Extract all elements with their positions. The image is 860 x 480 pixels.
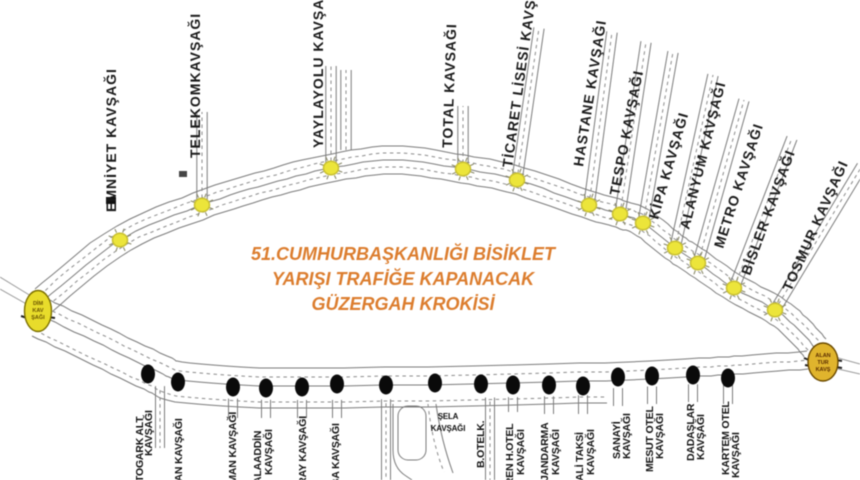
svg-text:LİMAN KAVŞAĞI: LİMAN KAVŞAĞI [172,418,185,480]
svg-text:KAVŞAĞI: KAVŞAĞI [729,432,742,478]
svg-text:KAV: KAV [32,308,44,314]
svg-text:KAVŞAĞI: KAVŞAĞI [653,413,666,459]
svg-text:YARIŞI TRAFİĞE KAPANACAK: YARIŞI TRAFİĞE KAPANACAK [272,268,536,289]
svg-text:OBA KAVŞAĞI: OBA KAVŞAĞI [329,423,342,480]
svg-text:TELEKOMKAVŞAĞI: TELEKOMKAVŞAĞI [186,13,203,158]
svg-text:B.OTELK.: B.OTELK. [475,420,487,468]
svg-text:SARAY KAVŞAĞI: SARAY KAVŞAĞI [296,416,309,480]
svg-text:GÜZERGAH KROKİSİ: GÜZERGAH KROKİSİ [311,294,495,314]
svg-text:ŞELA: ŞELA [438,412,459,421]
svg-text:KAVŞ: KAVŞ [816,367,831,373]
svg-text:KAVŞAĞI: KAVŞAĞI [431,424,465,433]
svg-text:DİM: DİM [33,300,44,307]
svg-text:KAVŞAĞI: KAVŞAĞI [549,429,562,475]
svg-text:KAVŞAĞI: KAVŞAĞI [584,429,597,475]
svg-text:TUR: TUR [817,360,828,366]
svg-text:ALAN: ALAN [815,353,830,359]
svg-text:YAYLAYOLU KAVŞAĞI: YAYLAYOLU KAVŞAĞI [309,0,326,148]
svg-text:KAVŞAĞI: KAVŞAĞI [620,413,633,459]
svg-text:KAVŞAĞI: KAVŞAĞI [514,429,527,475]
svg-text:KAVŞAĞI: KAVŞAĞI [262,429,275,475]
svg-text:KAVŞAĞI: KAVŞAĞI [142,410,155,456]
svg-text:51.CUMHURBAŞKANLIĞI BİSİKLET: 51.CUMHURBAŞKANLIĞI BİSİKLET [251,243,557,264]
svg-text:ŞAĞI: ŞAĞI [31,313,45,321]
svg-text:ORMAN KAVŞAĞI: ORMAN KAVŞAĞI [226,412,239,480]
svg-text:EMNİYET KAVŞAĞI: EMNİYET KAVŞAĞI [102,68,119,212]
svg-text:KAVŞAĞI: KAVŞAĞI [694,414,707,460]
